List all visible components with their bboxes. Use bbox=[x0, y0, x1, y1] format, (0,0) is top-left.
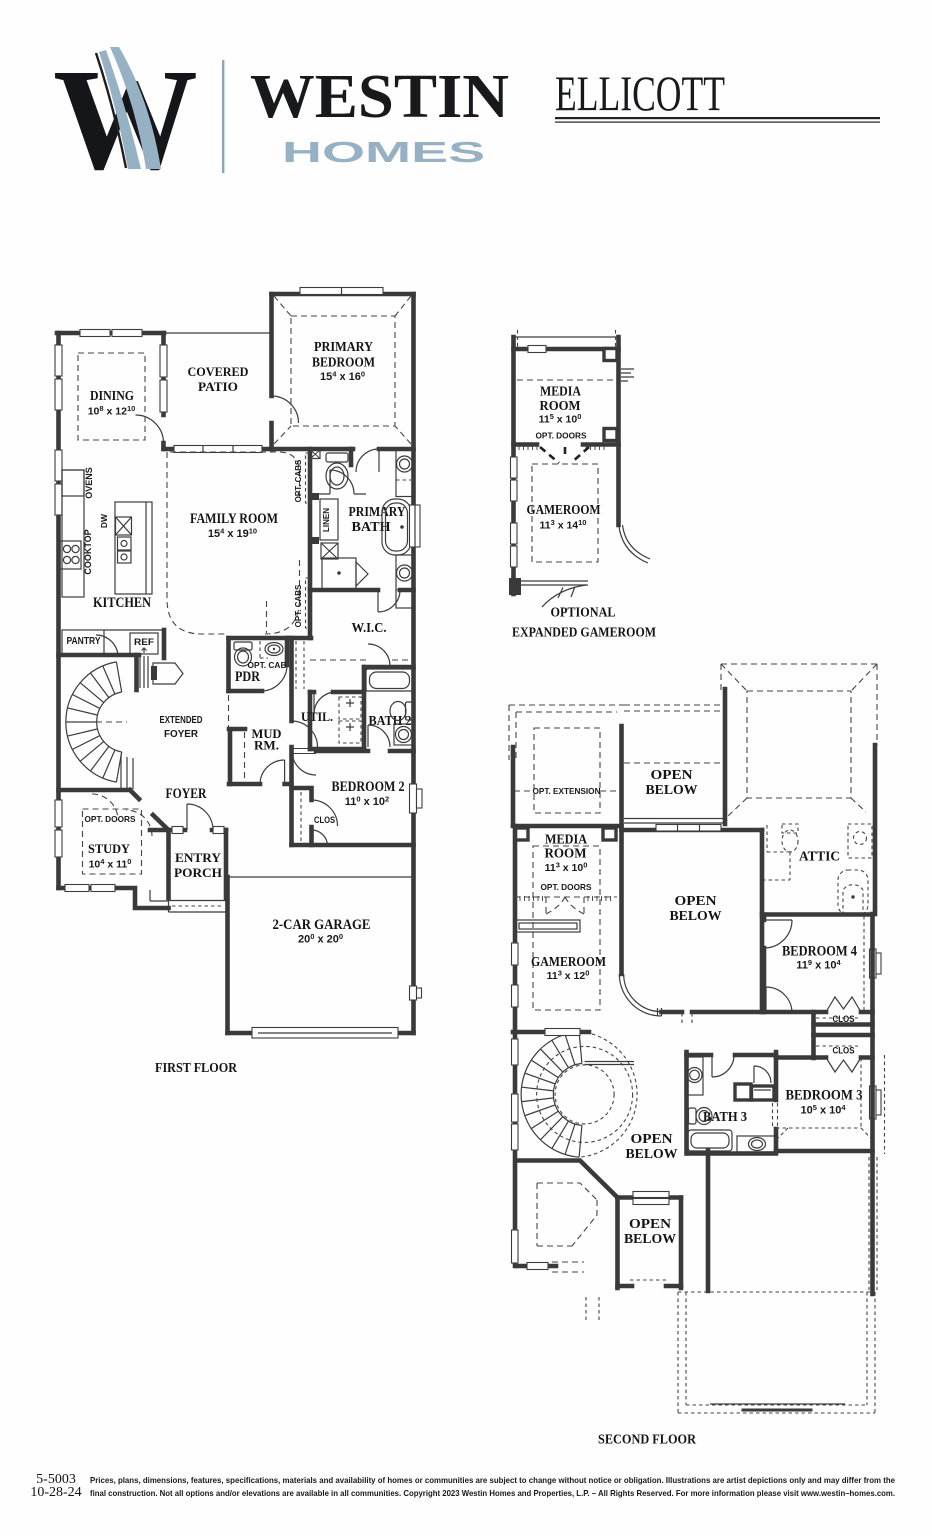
svg-text:COVERED: COVERED bbox=[188, 364, 249, 379]
svg-text:DW: DW bbox=[99, 513, 109, 528]
svg-text:BELOW: BELOW bbox=[624, 1231, 677, 1246]
svg-text:PDR: PDR bbox=[235, 669, 260, 685]
svg-text:FIRST FLOOR: FIRST FLOOR bbox=[155, 1060, 237, 1075]
svg-text:200 x 200: 200 x 200 bbox=[298, 932, 343, 946]
svg-text:10-28-24: 10-28-24 bbox=[30, 1485, 81, 1500]
svg-text:FAMILY ROOM: FAMILY ROOM bbox=[190, 511, 278, 527]
svg-text:OPEN: OPEN bbox=[675, 893, 717, 908]
svg-text:CLOS: CLOS bbox=[833, 1014, 855, 1025]
svg-text:OPT. CABS: OPT. CABS bbox=[294, 459, 303, 502]
svg-text:RM.: RM. bbox=[254, 739, 279, 753]
svg-text:BEDROOM 3: BEDROOM 3 bbox=[786, 1088, 863, 1104]
svg-text:STUDY: STUDY bbox=[88, 841, 131, 856]
svg-text:BEDROOM: BEDROOM bbox=[312, 356, 375, 371]
svg-text:ELLICOTT: ELLICOTT bbox=[555, 65, 725, 121]
svg-text:REF: REF bbox=[134, 637, 155, 647]
svg-text:KITCHEN: KITCHEN bbox=[93, 595, 151, 611]
svg-text:OPT. DOORS: OPT. DOORS bbox=[541, 882, 592, 892]
svg-text:ENTRY: ENTRY bbox=[175, 851, 221, 865]
svg-text:2-CAR GARAGE: 2-CAR GARAGE bbox=[273, 917, 371, 933]
svg-text:HOMES: HOMES bbox=[282, 137, 485, 169]
svg-text:LINEN: LINEN bbox=[322, 508, 331, 532]
svg-text:OPTIONAL: OPTIONAL bbox=[551, 606, 616, 621]
svg-text:FOYER: FOYER bbox=[166, 786, 207, 802]
svg-text:ROOM: ROOM bbox=[540, 398, 581, 413]
svg-text:OPEN: OPEN bbox=[651, 767, 693, 782]
svg-text:COOKTOP: COOKTOP bbox=[83, 529, 93, 574]
svg-text:OPEN: OPEN bbox=[631, 1131, 673, 1146]
svg-text:GAMEROOM: GAMEROOM bbox=[527, 502, 601, 517]
svg-text:115 x 100: 115 x 100 bbox=[539, 412, 582, 426]
svg-text:PATIO: PATIO bbox=[198, 379, 238, 394]
svg-text:WESTIN: WESTIN bbox=[250, 63, 509, 131]
svg-text:MEDIA: MEDIA bbox=[545, 832, 587, 847]
svg-text:104 x 110: 104 x 110 bbox=[89, 857, 132, 871]
svg-text:OPT. DOORS: OPT. DOORS bbox=[536, 431, 587, 441]
svg-text:154 x 160: 154 x 160 bbox=[320, 370, 365, 384]
svg-text:W.I.C.: W.I.C. bbox=[352, 621, 387, 636]
svg-text:OPT. DOORS: OPT. DOORS bbox=[85, 814, 136, 824]
svg-text:UTIL.: UTIL. bbox=[301, 710, 333, 724]
svg-text:CLOS: CLOS bbox=[833, 1046, 855, 1057]
svg-text:OPT. CABS: OPT. CABS bbox=[294, 584, 303, 627]
svg-text:113 x 100: 113 x 100 bbox=[545, 861, 588, 875]
svg-text:GAMEROOM: GAMEROOM bbox=[531, 954, 606, 969]
svg-text:final construction. Not all o: final construction. Not all options and/… bbox=[90, 1489, 895, 1498]
svg-text:PRIMARY: PRIMARY bbox=[314, 340, 373, 355]
svg-text:EXPANDED GAMEROOM: EXPANDED GAMEROOM bbox=[512, 626, 656, 641]
svg-text:OPEN: OPEN bbox=[629, 1216, 671, 1231]
svg-text:110 x 102: 110 x 102 bbox=[345, 795, 389, 809]
svg-text:CLOS: CLOS bbox=[314, 815, 335, 826]
svg-text:PRIMARY: PRIMARY bbox=[349, 504, 406, 519]
svg-text:113 x 120: 113 x 120 bbox=[547, 969, 590, 983]
svg-text:FOYER: FOYER bbox=[164, 728, 198, 740]
svg-text:BELOW: BELOW bbox=[646, 782, 699, 797]
svg-text:119 x 104: 119 x 104 bbox=[796, 958, 841, 972]
svg-text:PORCH: PORCH bbox=[174, 866, 222, 880]
svg-text:BELOW: BELOW bbox=[670, 908, 723, 923]
svg-text:EXTENDED: EXTENDED bbox=[160, 714, 203, 726]
svg-text:105 x 104: 105 x 104 bbox=[800, 1103, 846, 1117]
svg-text:BEDROOM 2: BEDROOM 2 bbox=[332, 779, 405, 795]
svg-text:ROOM: ROOM bbox=[545, 846, 587, 861]
svg-text:BEDROOM 4: BEDROOM 4 bbox=[782, 944, 857, 960]
svg-text:Prices, plans, dimensions, fea: Prices, plans, dimensions, features, spe… bbox=[90, 1476, 895, 1485]
svg-text:BELOW: BELOW bbox=[626, 1146, 679, 1161]
svg-text:MEDIA: MEDIA bbox=[540, 384, 581, 399]
svg-text:SECOND FLOOR: SECOND FLOOR bbox=[598, 1432, 696, 1447]
svg-text:ATTIC: ATTIC bbox=[799, 849, 840, 864]
svg-text:PANTRY: PANTRY bbox=[67, 635, 101, 647]
svg-text:DINING: DINING bbox=[90, 388, 134, 403]
svg-text:OPT. EXTENSION: OPT. EXTENSION bbox=[533, 786, 601, 796]
svg-text:OVENS: OVENS bbox=[84, 467, 94, 499]
